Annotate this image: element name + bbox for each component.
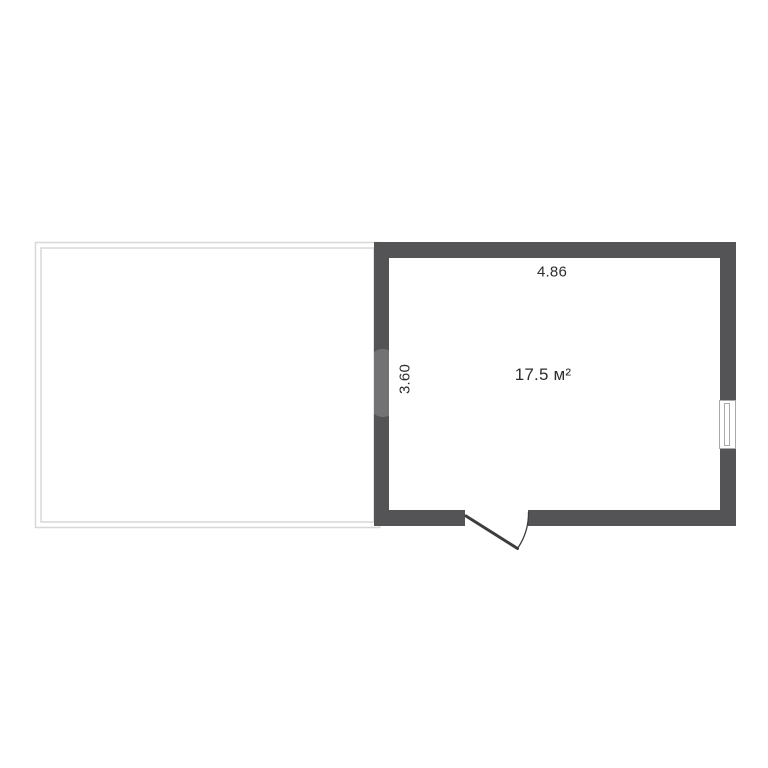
terrace-outer-outline [36, 243, 380, 528]
door-leaf [466, 516, 518, 549]
wall-bottom-right [528, 510, 736, 526]
wall-top [374, 242, 736, 258]
floor-plan-drawing [0, 0, 768, 768]
wall-bottom-left [374, 510, 465, 526]
room-height-label: 3.60 [397, 364, 414, 394]
floor-plan-canvas: 4.86 3.60 17.5 м² [0, 0, 768, 768]
wall-right-upper [720, 242, 736, 400]
room-width-label: 4.86 [537, 264, 567, 281]
terrace-inner-outline [41, 248, 374, 522]
window-glazing [725, 404, 730, 446]
door-swing-arc [518, 512, 529, 549]
room-area-label: 17.5 м² [515, 365, 572, 385]
